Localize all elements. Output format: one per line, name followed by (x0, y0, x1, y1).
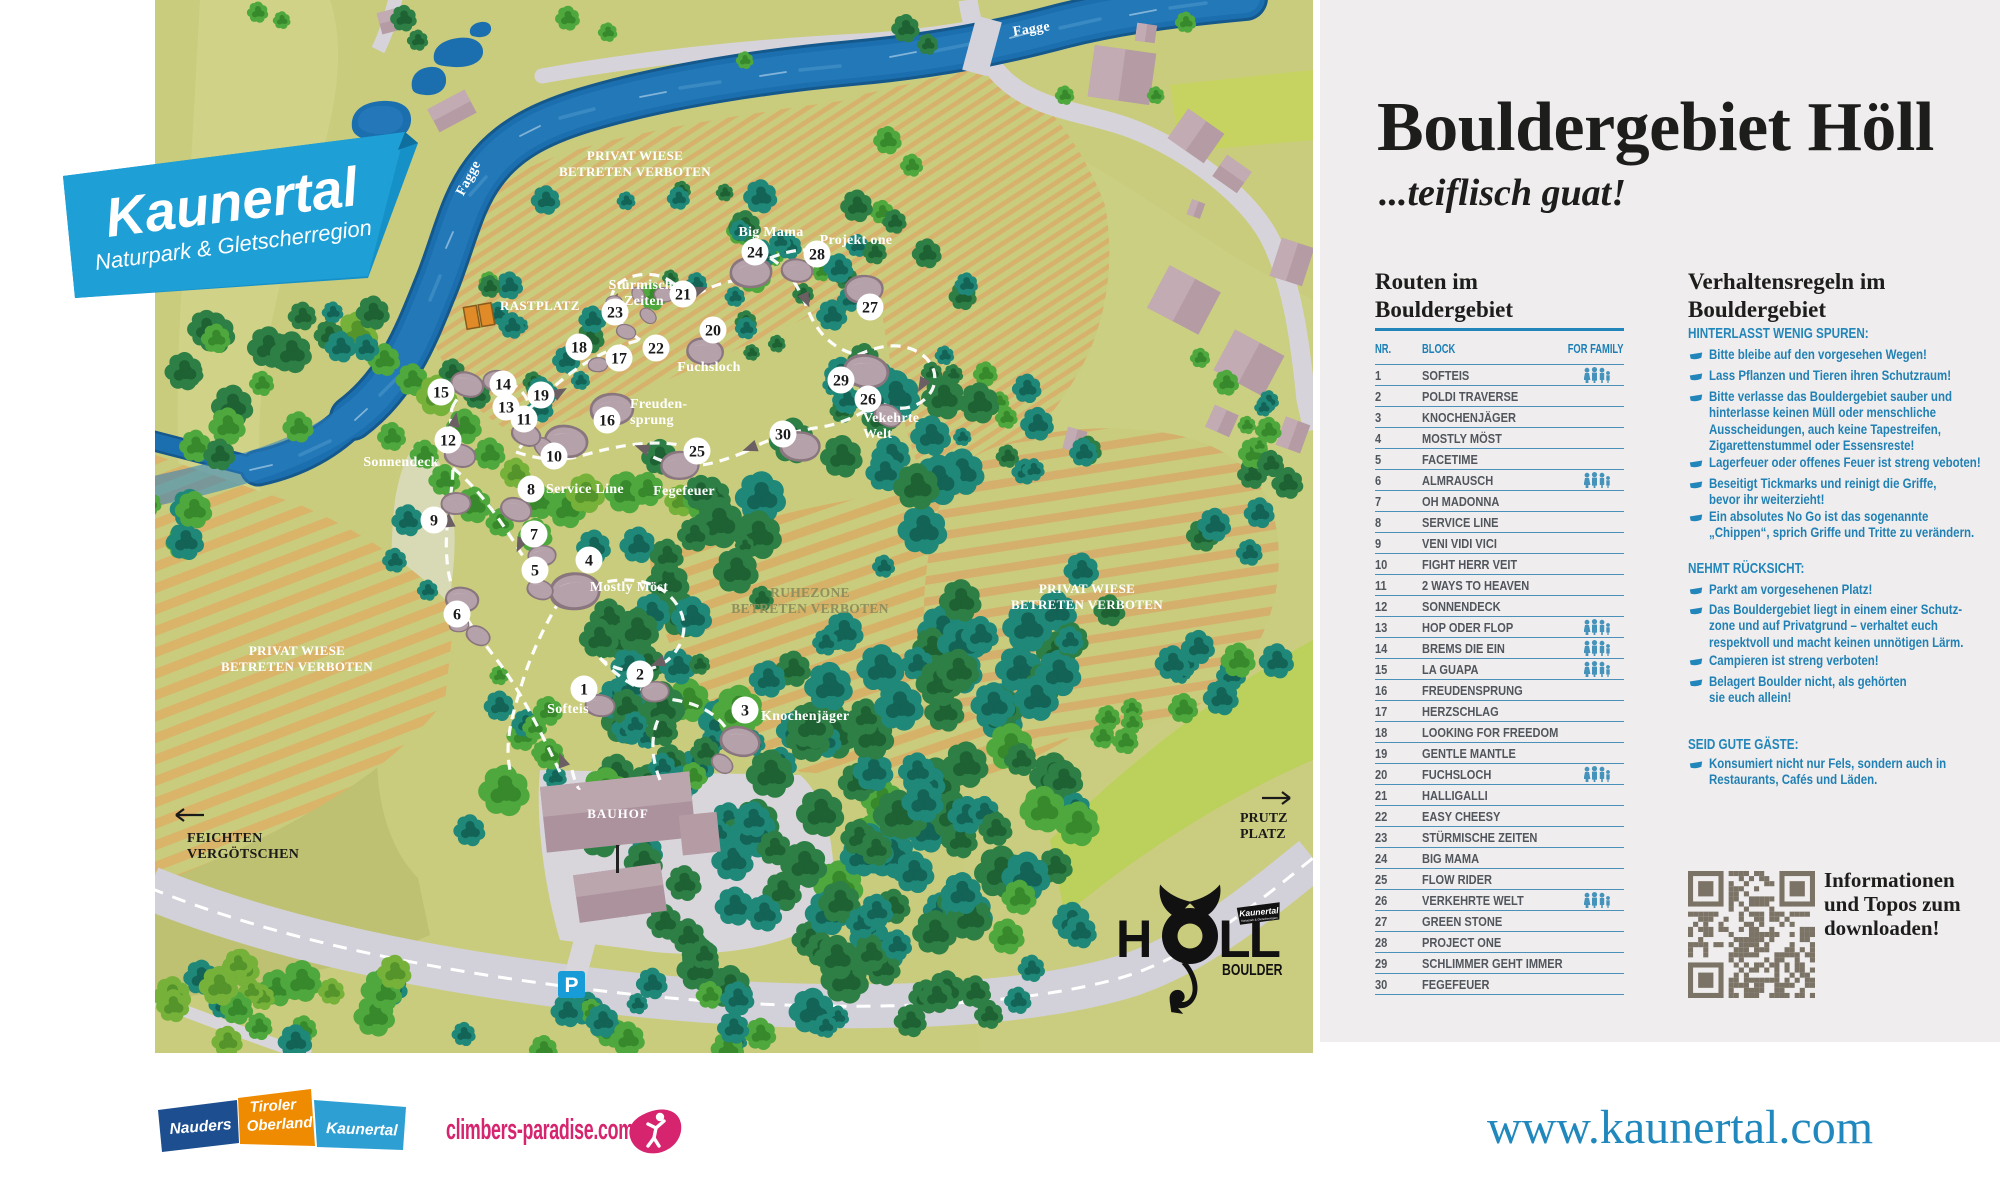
svg-text:Freuden-: Freuden- (630, 397, 687, 412)
svg-text:PRIVAT WIESE: PRIVAT WIESE (587, 148, 683, 163)
svg-text:Tiroler: Tiroler (249, 1096, 298, 1116)
svg-text:11: 11 (516, 412, 531, 429)
svg-text:15: 15 (433, 385, 449, 402)
svg-text:PRIVAT WIESE: PRIVAT WIESE (1039, 581, 1135, 596)
svg-text:RASTPLATZ: RASTPLATZ (500, 298, 580, 313)
svg-text:BOULDER: BOULDER (1222, 961, 1282, 979)
svg-text:30: 30 (775, 427, 791, 444)
svg-text:BETRETEN VERBOTEN: BETRETEN VERBOTEN (559, 164, 711, 179)
svg-text:Vekehrte: Vekehrte (863, 411, 919, 426)
svg-text:12: 12 (440, 433, 456, 450)
svg-text:18: 18 (571, 340, 587, 357)
svg-text:Projekt one: Projekt one (820, 233, 893, 248)
svg-text:13: 13 (498, 400, 514, 417)
svg-text:RUHEZONE: RUHEZONE (770, 585, 850, 600)
svg-text:6: 6 (453, 607, 461, 624)
svg-text:16: 16 (599, 413, 615, 430)
svg-text:VERGÖTSCHEN: VERGÖTSCHEN (187, 845, 299, 862)
svg-text:4: 4 (585, 553, 593, 570)
svg-text:27: 27 (862, 300, 878, 317)
svg-text:BETRETEN VERBOTEN: BETRETEN VERBOTEN (731, 601, 889, 616)
svg-text:BETRETEN VERBOTEN: BETRETEN VERBOTEN (1011, 597, 1163, 612)
svg-text:H: H (1116, 909, 1150, 968)
svg-text:sprung: sprung (630, 413, 674, 428)
svg-text:5: 5 (531, 563, 539, 580)
svg-text:17: 17 (611, 351, 627, 368)
svg-text:1: 1 (580, 682, 588, 699)
svg-text:Kaunertal: Kaunertal (326, 1120, 399, 1140)
svg-text:FEICHTEN: FEICHTEN (187, 831, 263, 846)
svg-text:BAUHOF: BAUHOF (587, 806, 649, 821)
svg-text:Fegefeuer: Fegefeuer (653, 484, 715, 499)
svg-text:19: 19 (533, 388, 549, 405)
svg-text:23: 23 (607, 305, 623, 322)
svg-text:20: 20 (705, 323, 721, 340)
svg-text:10: 10 (546, 449, 562, 466)
svg-text:22: 22 (648, 341, 664, 358)
svg-text:7: 7 (530, 527, 538, 544)
svg-text:Sonnendeck: Sonnendeck (363, 455, 438, 470)
svg-text:PLATZ: PLATZ (1240, 827, 1286, 842)
svg-text:BETRETEN VERBOTEN: BETRETEN VERBOTEN (221, 659, 373, 674)
svg-text:Stürmische: Stürmische (609, 278, 680, 293)
svg-text:26: 26 (860, 392, 876, 409)
svg-text:3: 3 (741, 703, 749, 720)
svg-text:9: 9 (430, 513, 438, 530)
svg-text:Fuchsloch: Fuchsloch (677, 360, 740, 375)
svg-text:14: 14 (495, 377, 511, 394)
svg-text:Welt: Welt (863, 427, 892, 442)
svg-text:climbers-paradise.com: climbers-paradise.com (446, 1114, 634, 1147)
svg-text:PRIVAT WIESE: PRIVAT WIESE (249, 643, 345, 658)
svg-text:Knochenjäger: Knochenjäger (761, 709, 849, 724)
svg-text:28: 28 (809, 247, 825, 264)
svg-text:Mostly Möst: Mostly Möst (590, 580, 668, 595)
svg-text:Service Line: Service Line (546, 482, 624, 497)
svg-text:Softeis: Softeis (547, 702, 589, 717)
svg-text:Zeiten: Zeiten (624, 294, 664, 309)
svg-text:8: 8 (527, 482, 535, 499)
svg-text:24: 24 (747, 245, 763, 262)
svg-text:PRUTZ: PRUTZ (1240, 811, 1287, 826)
svg-text:29: 29 (833, 373, 849, 390)
svg-text:Big Mama: Big Mama (738, 225, 803, 240)
svg-text:2: 2 (636, 667, 644, 684)
svg-text:25: 25 (689, 444, 705, 461)
svg-text:P: P (564, 974, 578, 997)
